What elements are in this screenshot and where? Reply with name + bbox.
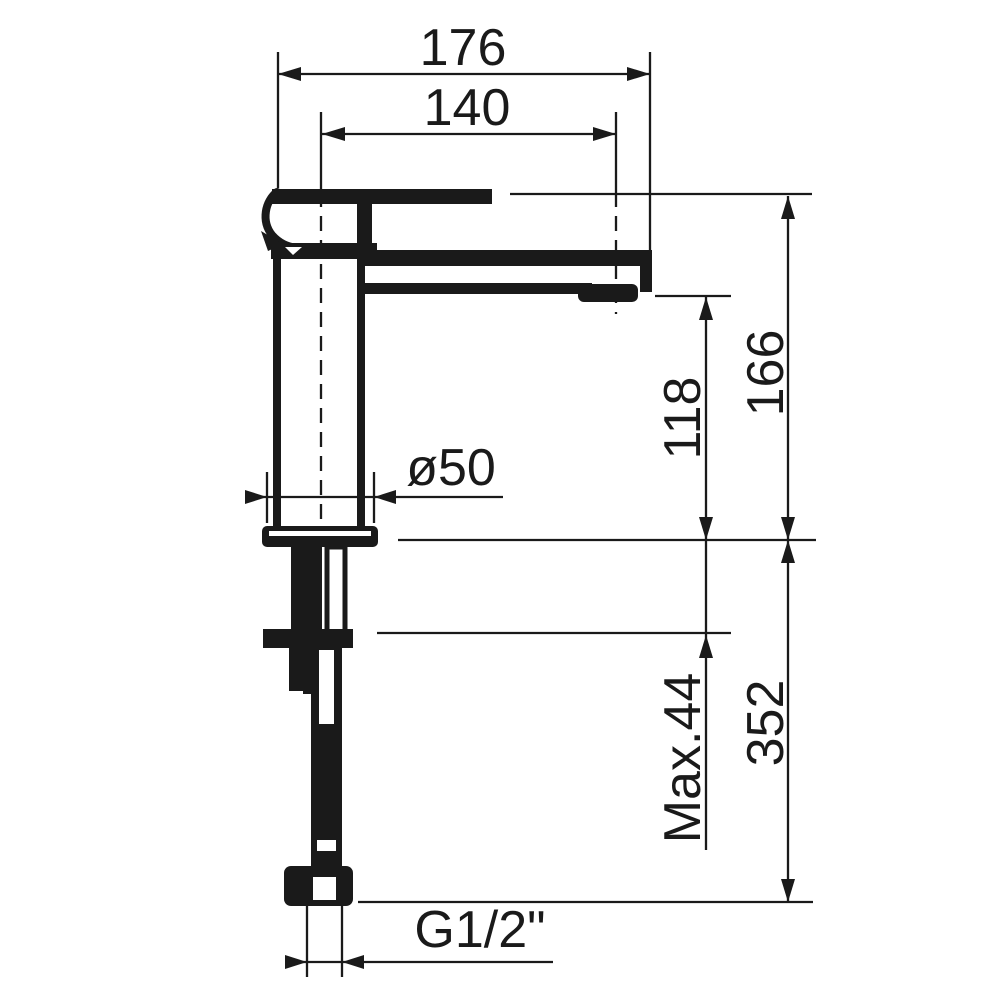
handle-lever — [272, 189, 492, 204]
dim-label-max44: Max.44 — [654, 673, 712, 844]
dim-label-diameter-50: ø50 — [406, 439, 496, 497]
spout-tip-face — [640, 250, 652, 292]
dim-label-166: 166 — [737, 330, 795, 417]
mounting-washer — [263, 629, 353, 648]
technical-drawing-canvas: 176 140 ø50 118 Max.44 166 352 — [0, 0, 1000, 1000]
paper-background — [0, 0, 1000, 1000]
mounting-stud — [291, 547, 322, 632]
faucet-dimension-drawing: 176 140 ø50 118 Max.44 166 352 — [0, 0, 1000, 1000]
aerator — [578, 284, 638, 302]
connector-nut-window — [313, 877, 336, 900]
base-flange-slit — [269, 531, 371, 536]
base-flange — [262, 526, 378, 547]
dim-label-176: 176 — [420, 19, 507, 77]
dim-label-352: 352 — [737, 680, 795, 767]
dim-label-118: 118 — [654, 377, 712, 460]
spout-bottom-edge — [360, 283, 592, 294]
spout-top-edge — [357, 250, 652, 266]
dim-label-140: 140 — [424, 79, 511, 137]
dim-label-g12: G1/2" — [414, 901, 545, 959]
supply-pipe-bore — [319, 650, 334, 724]
supply-pipe-break-mark — [317, 840, 336, 851]
handle-post — [357, 203, 372, 255]
